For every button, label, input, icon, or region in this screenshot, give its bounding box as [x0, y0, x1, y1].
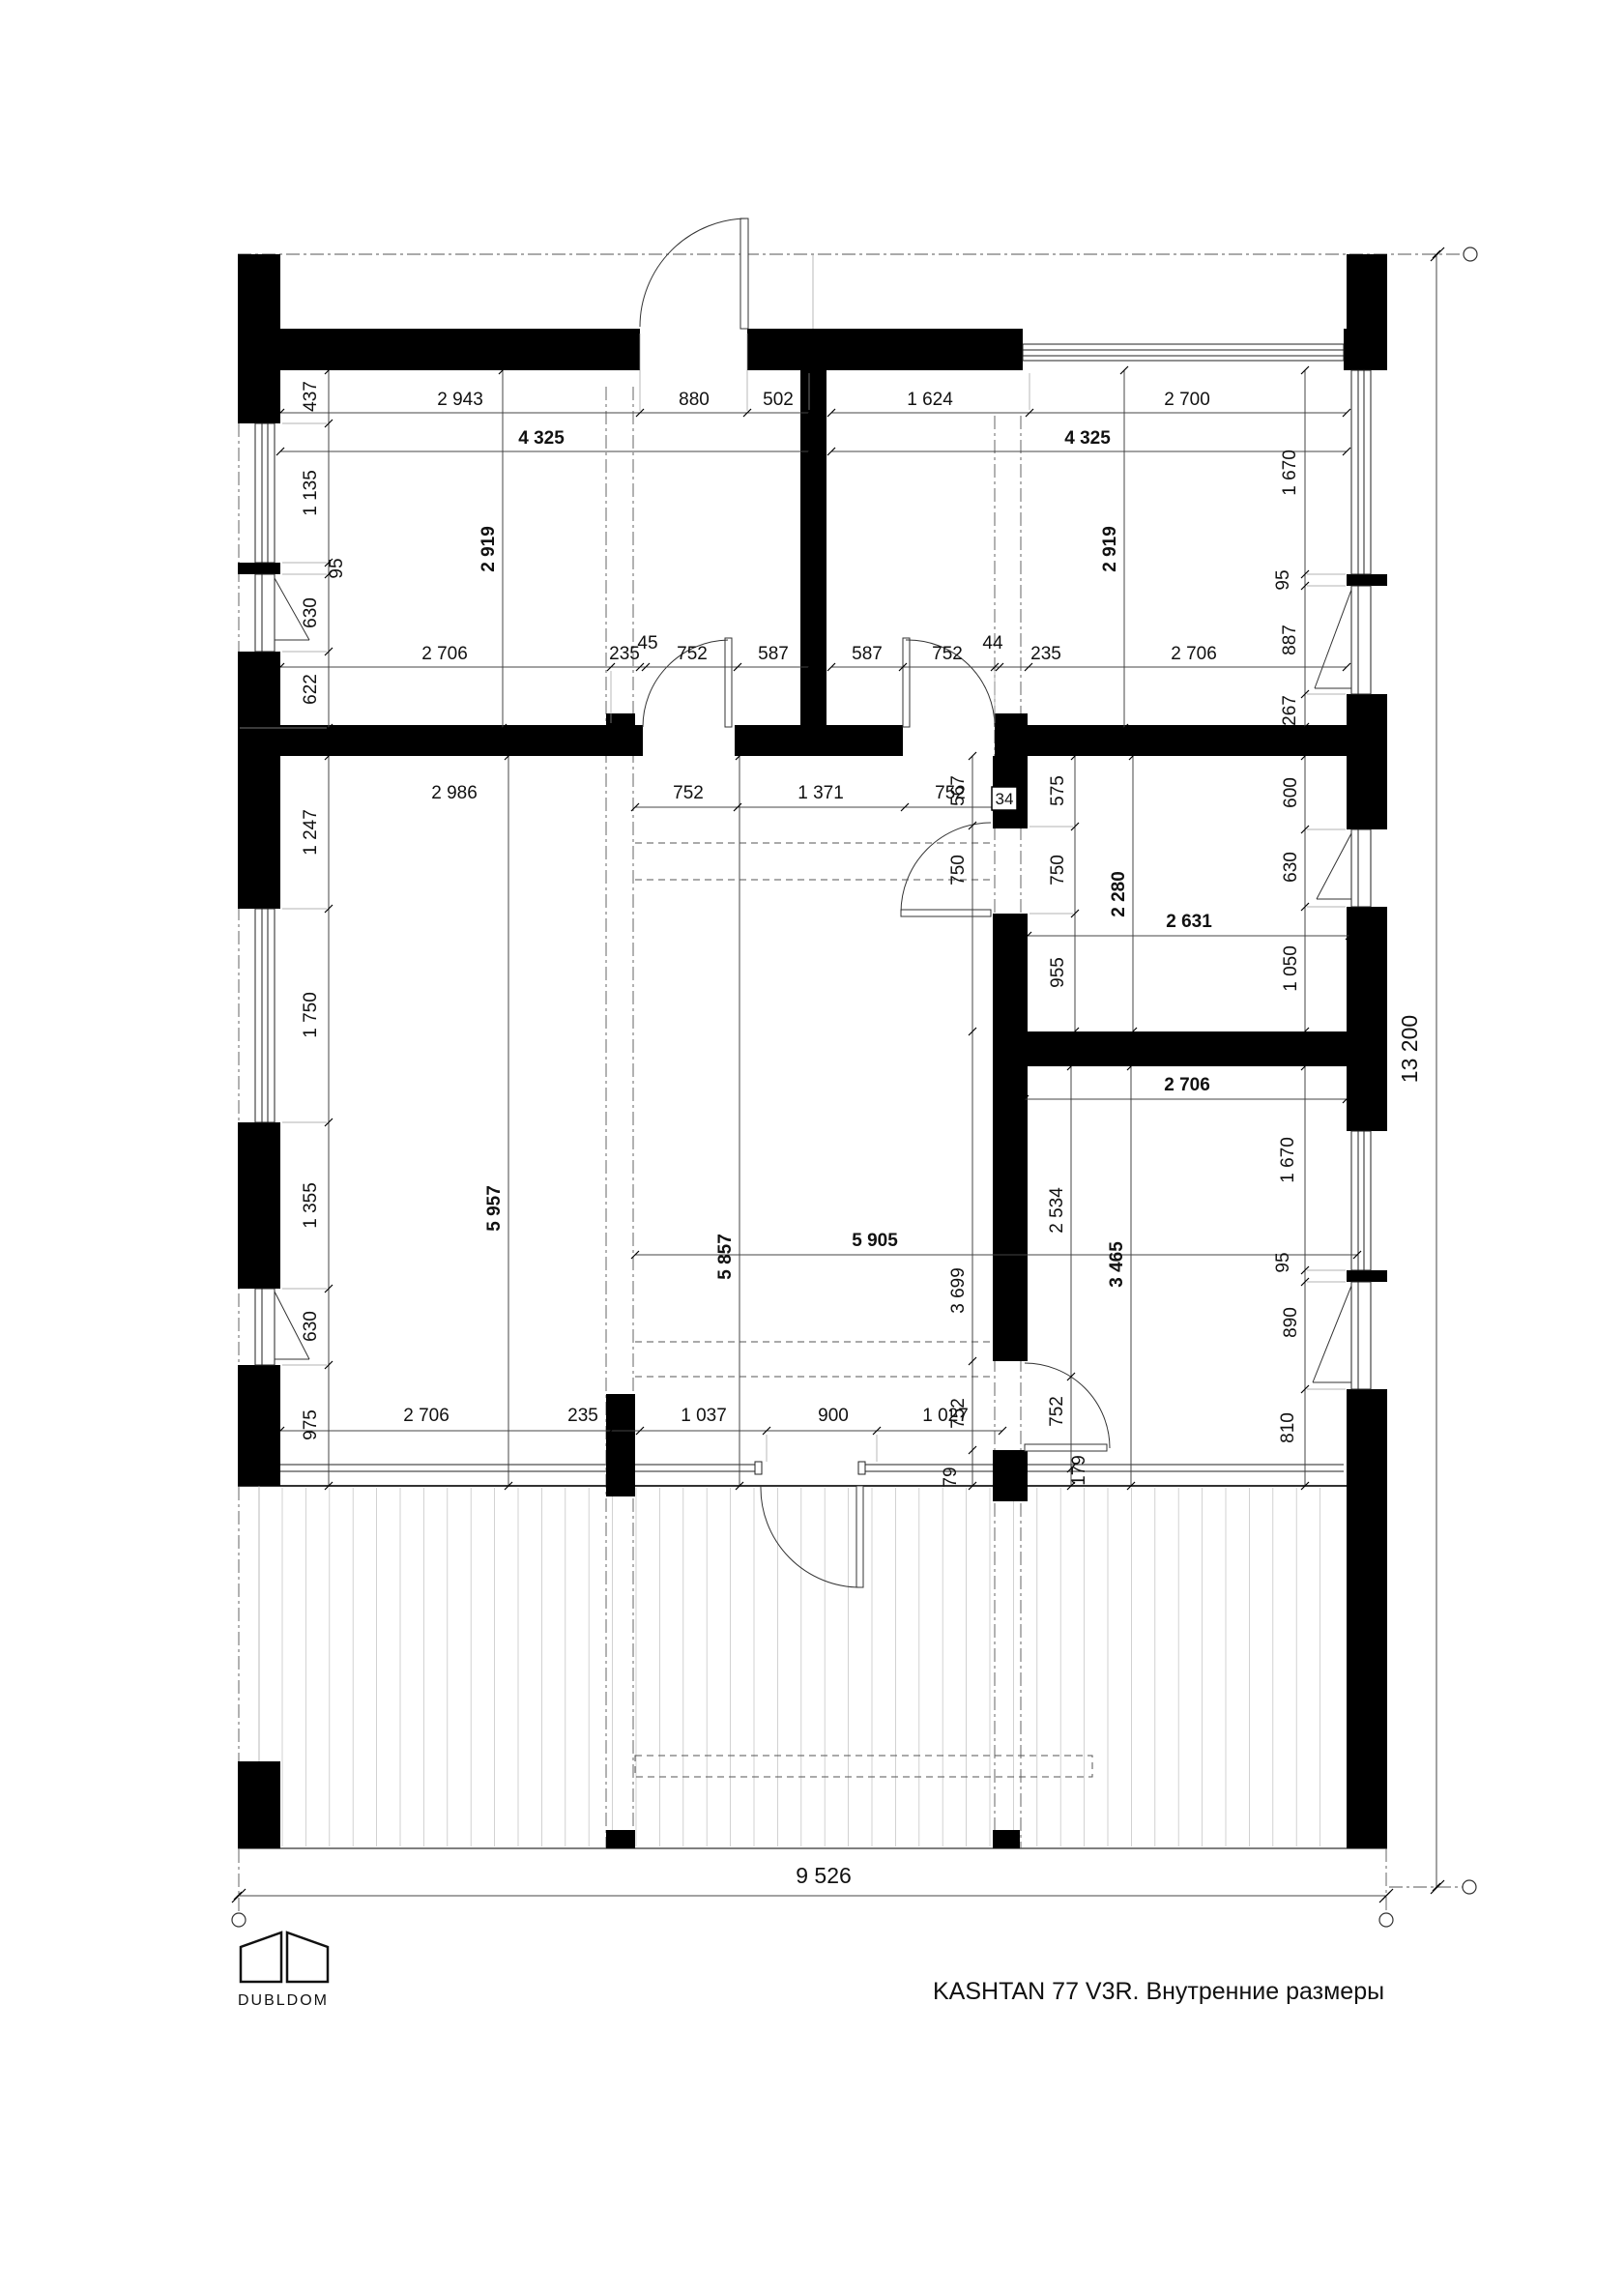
window-bed3-1670: [1351, 1131, 1371, 1270]
dim-4325-left: 4 325: [518, 428, 565, 449]
dim-3465: 3 465: [1107, 1241, 1127, 1288]
dim-1027: 1 027: [922, 1406, 969, 1426]
deck-terrace: [238, 1486, 1387, 1848]
door-bedroom3: [1025, 1363, 1110, 1451]
dim-810: 810: [1278, 1412, 1298, 1443]
dim-880: 880: [679, 390, 710, 410]
dim-3699: 3 699: [948, 1267, 969, 1314]
dim-750-bath: 750: [1048, 855, 1068, 886]
dim-2706-r2l: 2 706: [421, 644, 468, 664]
dim-235-r2l: 235: [609, 644, 640, 664]
dim-1135: 1 135: [301, 470, 321, 516]
dim-4325-right: 4 325: [1064, 428, 1111, 449]
dim-9526-overall: 9 526: [796, 1863, 852, 1888]
dim-587-r2l: 587: [758, 644, 789, 664]
dim-567: 567: [948, 775, 969, 806]
dim-95-left: 95: [327, 558, 347, 578]
dim-1670-bed3: 1 670: [1278, 1137, 1298, 1183]
window-right-887-casement: [1315, 586, 1371, 694]
dim-437: 437: [301, 381, 321, 412]
dim-34: 34: [996, 790, 1014, 808]
dimension-lines: [234, 250, 1440, 1900]
window-right-1670: [1351, 370, 1371, 574]
dim-887: 887: [1280, 625, 1300, 655]
door-deck-exit: [761, 1486, 863, 1587]
dim-2631: 2 631: [1166, 912, 1212, 932]
door-bathroom: [901, 823, 991, 916]
dim-235-r2r: 235: [1030, 644, 1061, 664]
dim-267: 267: [1280, 695, 1300, 726]
dim-79: 79: [941, 1467, 961, 1487]
dim-2706-bottom: 2 706: [403, 1406, 449, 1426]
datum-circle-top-right: [1464, 247, 1477, 261]
dim-5957: 5 957: [484, 1185, 505, 1232]
dim-630-left: 630: [301, 597, 321, 628]
dim-5905: 5 905: [852, 1231, 898, 1251]
deck-hatch: [282, 1488, 1320, 1846]
drawing-title: KASHTAN 77 V3R. Внутренние размеры: [933, 1978, 1384, 2005]
dim-1050: 1 050: [1281, 945, 1301, 992]
dim-752-bed3: 752: [1047, 1396, 1067, 1427]
dim-2919-left: 2 919: [478, 526, 499, 572]
dim-95-bed3: 95: [1273, 1252, 1293, 1272]
floor-plan-page: 2 943 880 502 1 624 2 700 4 325 4 325 43…: [0, 0, 1624, 2295]
doors: [640, 218, 1110, 1587]
dim-2706-r2r: 2 706: [1171, 644, 1217, 664]
dim-2943: 2 943: [437, 390, 483, 410]
dim-955: 955: [1048, 957, 1068, 988]
dimension-ticks: [234, 250, 1440, 1900]
dim-5857: 5 857: [715, 1234, 736, 1280]
dim-2986: 2 986: [431, 783, 478, 803]
dim-1247: 1 247: [301, 809, 321, 856]
dim-2919-right: 2 919: [1100, 526, 1120, 572]
window-bath-630-casement: [1317, 829, 1371, 907]
dim-45: 45: [637, 633, 657, 654]
dim-179: 179: [1069, 1455, 1089, 1486]
dim-752-r2l: 752: [677, 644, 708, 664]
south-glass-wall: [280, 1462, 1344, 1474]
dubldom-logo-text: DUBLDOM: [238, 1992, 329, 2009]
dubldom-logo-icon: [241, 1932, 328, 1982]
entry-door: [640, 218, 748, 329]
dim-750-hall: 750: [948, 855, 969, 886]
dim-1371: 1 371: [797, 783, 844, 803]
dim-1670-top: 1 670: [1280, 450, 1300, 496]
dim-2280: 2 280: [1109, 871, 1129, 917]
dim-1037: 1 037: [681, 1406, 727, 1426]
window-top-2700: [1023, 344, 1344, 361]
dim-2706-bed3: 2 706: [1164, 1075, 1210, 1095]
axis-lines: [232, 247, 1477, 1927]
dim-1750: 1 750: [301, 992, 321, 1038]
datum-circle-axis-right: [1379, 1913, 1393, 1927]
dim-575: 575: [1048, 775, 1068, 806]
dim-2534: 2 534: [1047, 1187, 1067, 1234]
floor-plan-drawing: 2 943 880 502 1 624 2 700 4 325 4 325 43…: [0, 0, 1624, 2295]
datum-circle-axis-left: [232, 1913, 246, 1927]
dim-1624: 1 624: [907, 390, 953, 410]
dim-1355: 1 355: [301, 1182, 321, 1229]
dimension-labels: 2 943 880 502 1 624 2 700 4 325 4 325 43…: [301, 381, 1422, 1888]
walls: [238, 254, 1387, 1848]
dim-630-bath: 630: [1281, 852, 1301, 883]
dim-13200-overall: 13 200: [1397, 1015, 1422, 1083]
dim-975: 975: [301, 1409, 321, 1440]
dim-235-bottom: 235: [567, 1406, 598, 1426]
dim-752-r2r: 752: [932, 644, 963, 664]
dim-752-hall1: 752: [673, 783, 704, 803]
window-bed3-890-casement: [1313, 1282, 1371, 1389]
dim-44: 44: [982, 633, 1003, 654]
dim-502: 502: [763, 390, 794, 410]
window-left-1135: [255, 423, 275, 563]
extension-lines: [240, 334, 1346, 1462]
dim-587-r2r: 587: [852, 644, 883, 664]
dim-890: 890: [1281, 1307, 1301, 1338]
dim-630-living: 630: [301, 1311, 321, 1342]
footer: DUBLDOM KASHTAN 77 V3R. Внутренние разме…: [238, 1932, 1384, 2009]
dim-2700: 2 700: [1164, 390, 1210, 410]
dim-600: 600: [1281, 777, 1301, 808]
datum-circle-bottom-right: [1463, 1880, 1476, 1894]
dim-95-right: 95: [1273, 569, 1293, 590]
window-left-1750: [255, 909, 275, 1122]
dim-622: 622: [301, 674, 321, 705]
dim-900: 900: [818, 1406, 849, 1426]
